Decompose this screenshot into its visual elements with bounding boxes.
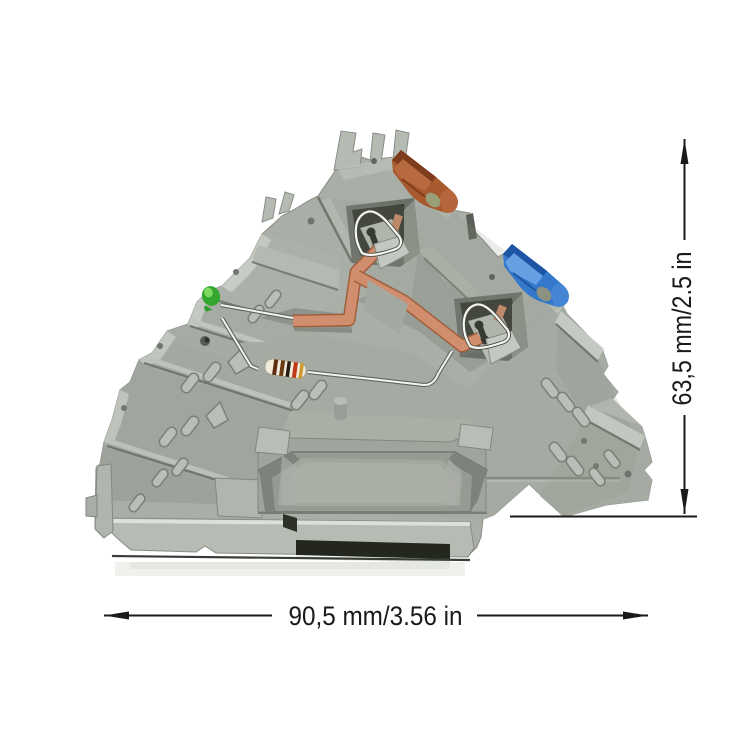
svg-text:90,5 mm/3.56 in: 90,5 mm/3.56 in: [289, 601, 463, 631]
svg-text:63,5 mm/2.5 in: 63,5 mm/2.5 in: [667, 252, 697, 406]
